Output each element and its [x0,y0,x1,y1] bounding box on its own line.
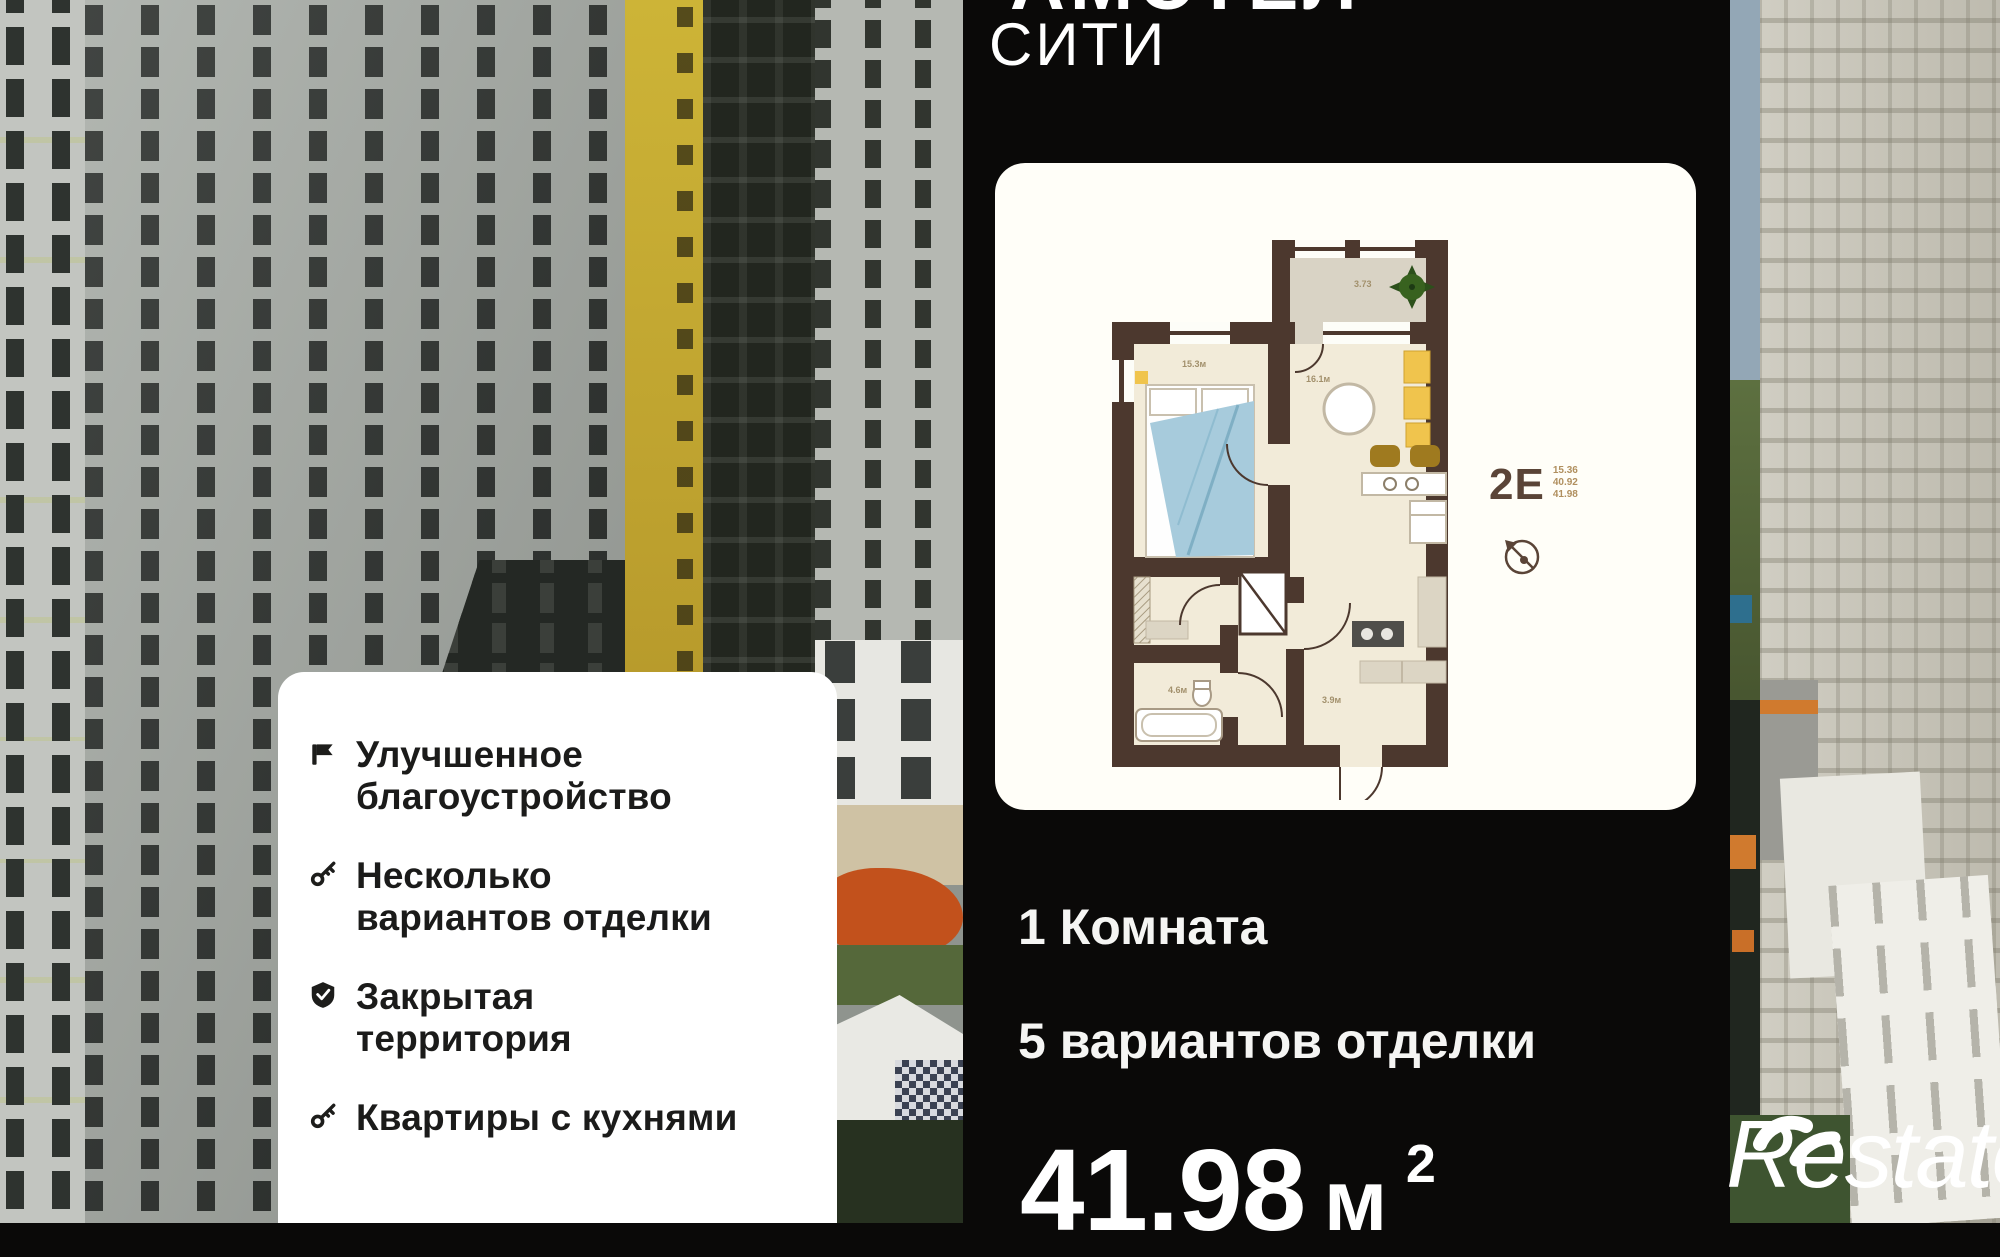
area-unit: м [1324,1153,1388,1249]
info-panel: АМСТЕЛ СИТИ [963,0,1730,1223]
pillow [1150,389,1196,415]
feature-line: Квартиры с кухнями [356,1097,738,1139]
compass-icon [1495,529,1547,581]
nightstand [1135,371,1148,384]
apartment-type-label: 2Е [1489,463,1545,507]
window-line [1295,247,1345,251]
wardrobe-yellow [1404,387,1430,419]
living-area-label: 16.1м [1306,374,1331,384]
wardrobe-yellow [1406,423,1430,447]
feature-text: Улучшенное благоустройство [356,734,672,818]
feature-item-landscaping: Улучшенное благоустройство [308,734,809,818]
restate-watermark: Restate [1686,1082,2000,1232]
bath-area-label: 4.6м [1168,685,1188,695]
area-line: 41.98 [1553,489,1578,501]
listing-banner: { "header": { "line1": "АМСТЕЛ", "line2"… [0,0,2000,1223]
flag-icon [308,738,338,768]
sky-sliver [1730,0,1760,390]
canopy-checker-wall [895,1060,963,1125]
hall-area-label: 3.9м [1322,695,1342,705]
window-line [1360,247,1415,251]
building-facade-far [815,0,963,700]
finishes-count: 5 вариантов отделки [1018,1012,1536,1070]
total-area: 41.98 м 2 [1020,1123,1436,1257]
burner [1361,628,1373,640]
floor-plan: 3.73 15.3м 16.1м 4.6м 3.9м [1090,225,1492,800]
burner [1381,628,1393,640]
trees-sliver [1730,380,1760,710]
area-superscript: 2 [1406,1134,1436,1194]
toilet-tank [1194,681,1210,689]
fridge [1410,501,1446,543]
courtyard-lawn [815,945,963,1005]
balcony-orange-stripe [1760,700,1818,714]
area-value: 41.98 [1020,1125,1305,1255]
apartment-areas: 15.36 40.92 41.98 [1553,465,1578,501]
feature-line: вариантов отделки [356,897,712,939]
counter-strip [1418,577,1446,647]
balcony-area-label: 3.73 [1354,279,1372,289]
dining-table [1324,384,1374,434]
kitchen-counter [1362,473,1446,495]
feature-line: Улучшенное [356,734,672,776]
feature-text: Несколько вариантов отделки [356,855,712,939]
key-icon [308,859,338,889]
feature-line: благоустройство [356,776,672,818]
teal-detail [1730,595,1752,623]
window-line [1323,331,1410,335]
dresser [1146,621,1188,639]
key-icon [308,1101,338,1131]
feature-line: территория [356,1018,572,1060]
bedroom-area-label: 15.3м [1182,359,1207,369]
pouf [1410,445,1440,467]
feature-item-security: Закрытая территория [308,976,809,1060]
area-line: 15.36 [1553,465,1578,477]
restate-brand-text: Restate [1726,1100,2000,1210]
orange-detail [1730,835,1756,869]
courtyard-shadow [815,1120,963,1223]
shadow-sliver [1730,700,1760,1120]
feature-text: Закрытая территория [356,976,572,1060]
floor-plan-card: 3.73 15.3м 16.1м 4.6м 3.9м 2Е 15.36 40.9… [995,163,1696,810]
complex-name-line2: СИТИ [989,10,1167,79]
rooms-count: 1 Комната [1018,898,1267,956]
window-line [1119,360,1124,402]
feature-line: Несколько [356,855,712,897]
feature-text: Квартиры с кухнями [356,1097,738,1139]
apartment-type-block: 2Е 15.36 40.92 41.98 [1489,463,1578,507]
stove [1352,621,1404,647]
area-line: 40.92 [1553,477,1578,489]
building-facade-light [0,0,85,1223]
window-line [1170,331,1230,335]
feature-line: Закрытая [356,976,572,1018]
feature-item-kitchens: Квартиры с кухнями [308,1097,809,1139]
shield-check-icon [308,980,338,1010]
orange-detail [1732,930,1754,952]
building-facade-white [815,640,963,815]
pouf [1370,445,1400,467]
features-card: Улучшенное благоустройство Несколько вар… [278,672,837,1223]
city-photo-right [1730,0,2000,1223]
feature-item-finishes: Несколько вариантов отделки [308,855,809,939]
wardrobe-yellow [1404,351,1430,383]
